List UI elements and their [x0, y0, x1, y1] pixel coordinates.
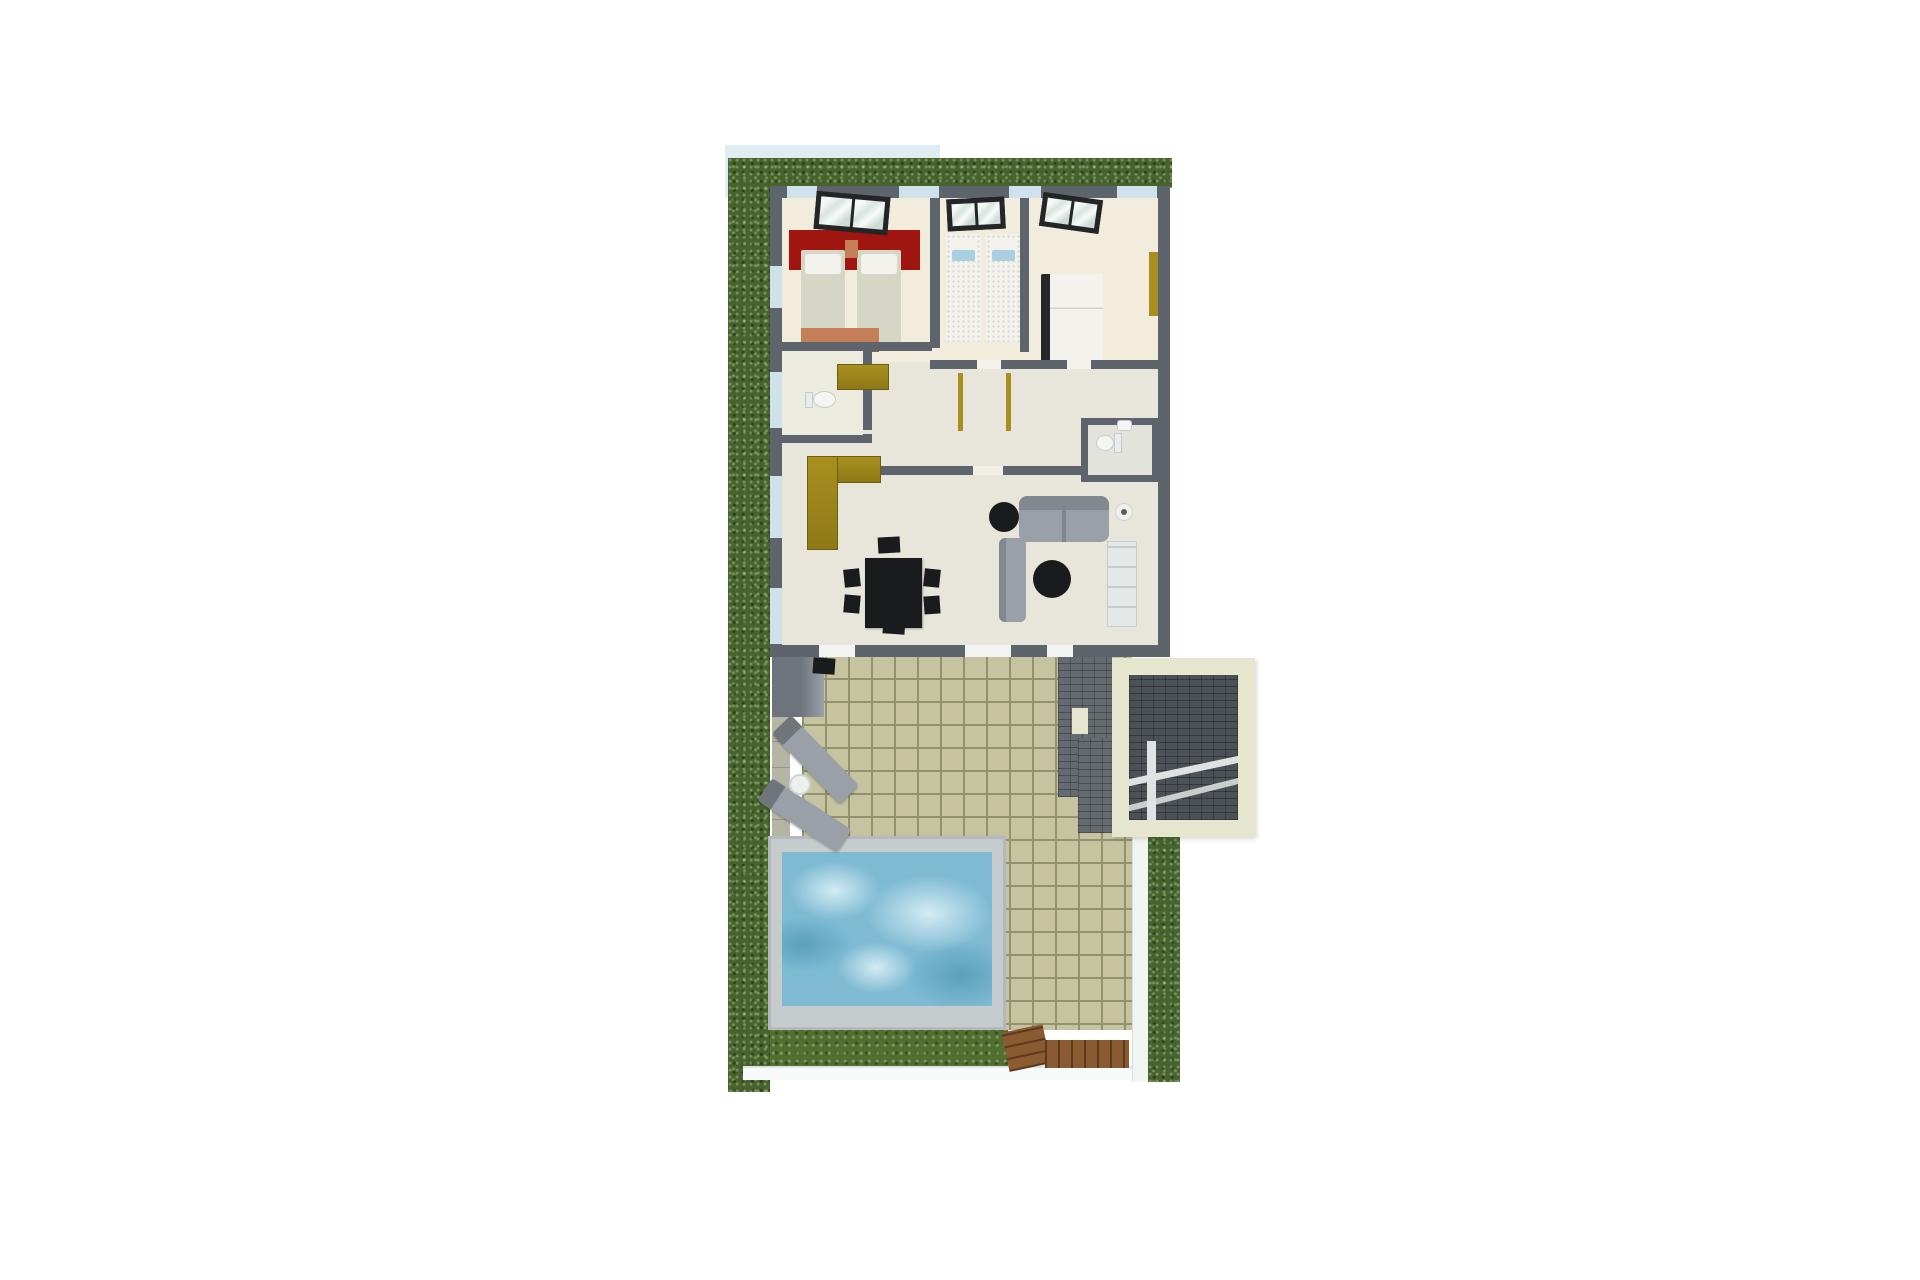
interior-door — [1067, 360, 1091, 369]
right-boundary-wall — [1132, 835, 1148, 1082]
stair-portal-frame — [1112, 658, 1255, 837]
single-bed — [986, 234, 1021, 342]
bedroom-window — [813, 191, 890, 235]
stair-portal-opening — [1129, 675, 1238, 820]
wooden-step — [1045, 1040, 1129, 1068]
wooden-step — [1001, 1024, 1050, 1072]
round-coffee-table — [1033, 560, 1071, 598]
interior-wall — [1020, 198, 1029, 352]
kitchen-counter-l — [807, 456, 838, 550]
window-pane — [852, 199, 885, 230]
blue-cushion — [952, 250, 975, 261]
tv-cabinet — [1107, 541, 1137, 627]
single-bed — [946, 234, 981, 342]
terrace-door — [819, 645, 855, 657]
window-pane — [951, 203, 975, 226]
window-glass — [770, 372, 782, 428]
window-glass — [770, 588, 782, 644]
sofa-chaise — [999, 538, 1026, 622]
window-pane — [977, 202, 1001, 225]
stone-wall-window-opening — [1072, 708, 1088, 734]
lawn-strip — [770, 1026, 1008, 1068]
toilet — [813, 391, 836, 408]
wardrobe-door — [1149, 252, 1158, 316]
interior-wall — [782, 434, 872, 443]
window-pane — [1071, 201, 1098, 228]
hedge-top — [770, 158, 1172, 188]
hedge-right — [1148, 820, 1180, 1082]
window-glass — [899, 186, 939, 198]
kitchen-counter — [837, 364, 889, 390]
dining-chair — [878, 536, 901, 553]
terrace-door — [1047, 645, 1073, 657]
window-glass — [1117, 186, 1157, 198]
doormat — [812, 657, 835, 674]
round-side-table — [789, 774, 811, 795]
window-glass — [787, 186, 817, 198]
terrace-door — [965, 645, 1011, 657]
interior-door — [973, 466, 1003, 475]
floor-plan — [725, 140, 1260, 1095]
dining-chair — [882, 617, 905, 634]
dining-chair — [843, 594, 861, 613]
window-glass — [1009, 186, 1041, 198]
floorplan-canvas — [0, 0, 1920, 1280]
interior-wall — [930, 360, 1158, 369]
stone-wall-lower — [1078, 738, 1112, 833]
pillow — [805, 254, 841, 274]
dining-chair — [923, 568, 941, 588]
toilet — [1096, 435, 1114, 451]
floor-lamp — [1115, 503, 1133, 521]
nightstand — [845, 240, 858, 258]
dining-chair — [923, 595, 940, 614]
interior-door — [977, 360, 1001, 369]
closet-door — [958, 373, 963, 431]
sink — [1117, 420, 1132, 431]
swimming-pool — [782, 852, 992, 1006]
white-walkway — [743, 1066, 1165, 1080]
stair-column — [1147, 741, 1156, 820]
interior-wall — [782, 342, 932, 351]
round-coffee-table — [989, 502, 1019, 532]
window-glass — [770, 476, 782, 538]
closet-door — [1006, 373, 1011, 431]
dining-chair — [843, 568, 861, 588]
window-pane — [819, 196, 852, 227]
master-bed — [1041, 274, 1103, 362]
toilet — [805, 392, 813, 408]
window-glass — [770, 266, 782, 308]
toilet — [1114, 433, 1122, 453]
interior-wall — [930, 198, 940, 348]
window-pane — [1045, 198, 1072, 225]
hedge-left — [728, 158, 770, 1092]
blue-cushion — [992, 250, 1015, 261]
bedroom-window — [946, 197, 1006, 232]
pillow — [861, 254, 897, 274]
sectional-sofa — [1019, 496, 1109, 542]
